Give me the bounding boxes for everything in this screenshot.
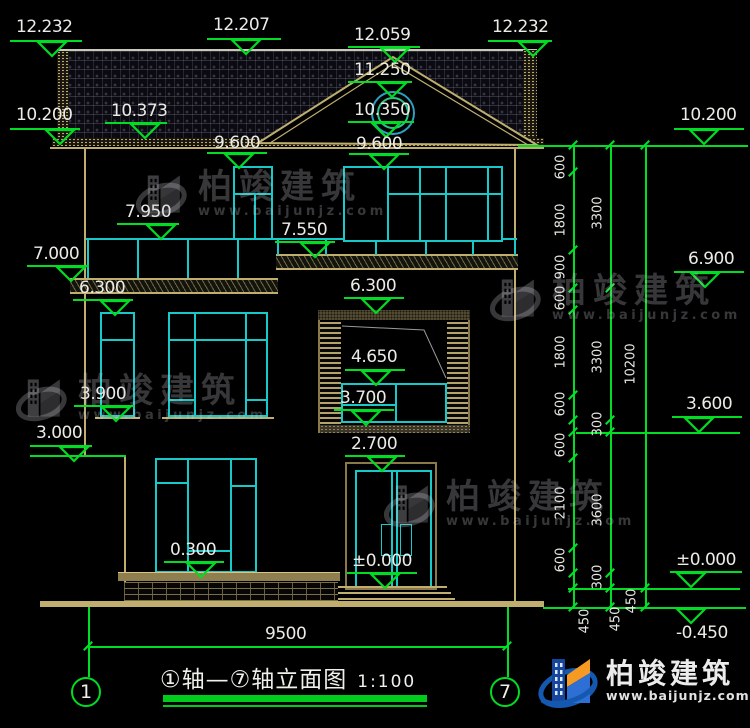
elevation-marker-triangle — [35, 41, 69, 58]
dimension-chain-label: 1800 — [554, 203, 569, 236]
brand-block: 柏竣建筑 www.baijunjz.com — [538, 648, 750, 714]
wall-left-upper — [84, 147, 86, 456]
watermark-text: 柏竣建筑www.baijunjz.com — [446, 480, 635, 529]
watermark-site: www.baijunjz.com — [446, 514, 635, 529]
elevation-marker-label: 9.600 — [214, 134, 260, 153]
elevation-marker-triangle — [222, 153, 256, 170]
elevation-marker-label: 12.207 — [213, 16, 269, 35]
dimension-line-vertical — [645, 145, 647, 607]
watermark-logo-icon — [16, 370, 70, 426]
dimension-line-vertical — [573, 145, 575, 607]
dimension-chain-label: 450 — [578, 609, 593, 634]
dimension-line-vertical — [610, 145, 612, 607]
axis-bubble-1: 1 — [71, 677, 101, 707]
railing-post — [375, 240, 377, 255]
dimension-chain-label: 1800 — [554, 335, 569, 368]
elevation-marker-triangle — [349, 410, 383, 427]
brand-logo-icon — [538, 648, 602, 714]
elevation-marker-label: 10.350 — [354, 101, 410, 120]
elevation-marker-triangle — [375, 82, 409, 99]
elevation-marker-label: 12.232 — [16, 18, 72, 37]
elevation-marker-label: 2.700 — [351, 435, 397, 454]
dimension-chain-label: 600 — [554, 286, 569, 311]
railing-post — [425, 240, 427, 255]
elevation-marker-label: 10.373 — [111, 102, 167, 121]
watermark-logo-icon — [490, 270, 544, 326]
railing-post — [472, 240, 474, 255]
elevation-marker-triangle — [43, 129, 77, 146]
elevation-marker-triangle — [128, 123, 162, 140]
brand-name: 柏竣建筑 — [606, 660, 750, 688]
elevation-marker-label: 7.000 — [33, 245, 79, 264]
axis-number-7: 7 — [499, 681, 511, 703]
door-step — [331, 592, 451, 594]
elevation-marker-triangle — [687, 129, 721, 146]
cad-elevation-drawing: 6001800900600180060060021006003300330030… — [0, 0, 750, 728]
dimension-chain-label: 600 — [554, 392, 569, 417]
dimension-chain-label: 10200 — [624, 343, 639, 384]
dimension-chain-label: 3300 — [591, 340, 606, 373]
elevation-marker-label: 0.300 — [170, 541, 216, 560]
dimension-chain-label: 3300 — [591, 196, 606, 229]
elevation-marker-label: 4.650 — [351, 348, 397, 367]
elevation-marker-label: 3.600 — [686, 395, 732, 414]
watermark-name: 柏竣建筑 — [446, 480, 635, 514]
elevation-marker-triangle — [367, 154, 401, 171]
elevation-marker-triangle — [682, 417, 716, 434]
title-underline-thin — [163, 705, 427, 707]
elevation-marker-triangle — [359, 370, 393, 387]
elevation-marker-label: -0.450 — [676, 624, 728, 643]
elevation-marker-triangle — [674, 572, 708, 589]
railing-post — [237, 240, 239, 278]
elevation-marker-label: 7.950 — [125, 203, 171, 222]
elevation-marker-triangle — [184, 562, 218, 579]
railing-post — [187, 240, 189, 278]
drawing-title-text: ①轴—⑦轴立面图 — [160, 660, 347, 694]
plinth-sill-band — [118, 572, 340, 581]
elevation-marker-label: 3.000 — [36, 424, 82, 443]
elevation-marker-label: 10.200 — [680, 106, 736, 125]
elevation-marker-label: 6.300 — [350, 277, 396, 296]
elevation-marker-triangle — [144, 224, 178, 241]
elevation-marker-label: ±0.000 — [676, 551, 736, 570]
dimension-chain-label: 450 — [609, 607, 624, 632]
elevation-marker-label: 10.200 — [16, 106, 72, 125]
elevation-marker-label: 12.059 — [354, 26, 410, 45]
axis-bubble-7: 7 — [490, 677, 520, 707]
elevation-marker-triangle — [365, 456, 399, 473]
elevation-marker-label: 11.250 — [354, 61, 410, 80]
dimension-chain-label: 900 — [554, 255, 569, 280]
elevation-marker-triangle — [368, 573, 402, 590]
window-3f-center — [343, 166, 503, 242]
dimension-line — [88, 646, 507, 648]
elevation-marker-label: 7.550 — [281, 221, 327, 240]
elevation-marker-label: 6.900 — [688, 250, 734, 269]
elevation-marker-triangle — [57, 446, 91, 463]
door-step — [327, 598, 455, 600]
drawing-title: ①轴—⑦轴立面图 1:100 — [160, 660, 450, 694]
elevation-marker-label: 9.600 — [356, 135, 402, 154]
window-2f-wide — [168, 312, 268, 417]
dimension-chain-label: 300 — [591, 565, 606, 590]
dimension-chain-label: 2100 — [554, 486, 569, 519]
elevation-marker-triangle — [688, 272, 722, 289]
elevation-marker-triangle — [298, 242, 332, 259]
brand-text: 柏竣建筑 www.baijunjz.com — [606, 660, 750, 703]
balcony-box-sill — [320, 425, 470, 433]
elevation-marker-triangle — [516, 41, 550, 58]
louver-panel-left — [320, 322, 341, 430]
elevation-marker-triangle — [99, 406, 133, 423]
ground-line — [40, 601, 544, 607]
overall-width-dimension: 9500 — [265, 625, 306, 644]
dimension-chain-label: 600 — [554, 433, 569, 458]
dimension-chain-label: 600 — [554, 155, 569, 180]
axis-number-1: 1 — [80, 681, 92, 703]
elevation-marker-label: 3.900 — [80, 385, 126, 404]
wall-right — [514, 147, 516, 607]
dimension-chain-label: 300 — [591, 412, 606, 437]
dimension-chain-label: 450 — [625, 589, 640, 614]
elevation-marker-triangle — [674, 608, 708, 625]
drawing-scale: 1:100 — [357, 672, 416, 692]
railing-post — [514, 240, 516, 255]
dimension-chain-label: 3600 — [591, 493, 606, 526]
title-underline-thick — [163, 695, 427, 702]
window-sill — [162, 417, 274, 419]
elevation-marker-label: 12.232 — [492, 18, 548, 37]
dimension-chain-label: 600 — [554, 548, 569, 573]
window-3f-left — [233, 166, 273, 240]
brand-website: www.baijunjz.com — [606, 688, 750, 703]
elevation-marker-label: 3.700 — [340, 389, 386, 408]
elevation-marker-triangle — [98, 300, 132, 317]
elevation-marker-triangle — [229, 39, 263, 56]
elevation-marker-label: 6.300 — [79, 279, 125, 298]
balcony-lintel — [318, 310, 470, 320]
elevation-marker-triangle — [359, 298, 393, 315]
elevation-marker-label: ±0.000 — [352, 552, 412, 571]
railing-post — [137, 240, 139, 278]
